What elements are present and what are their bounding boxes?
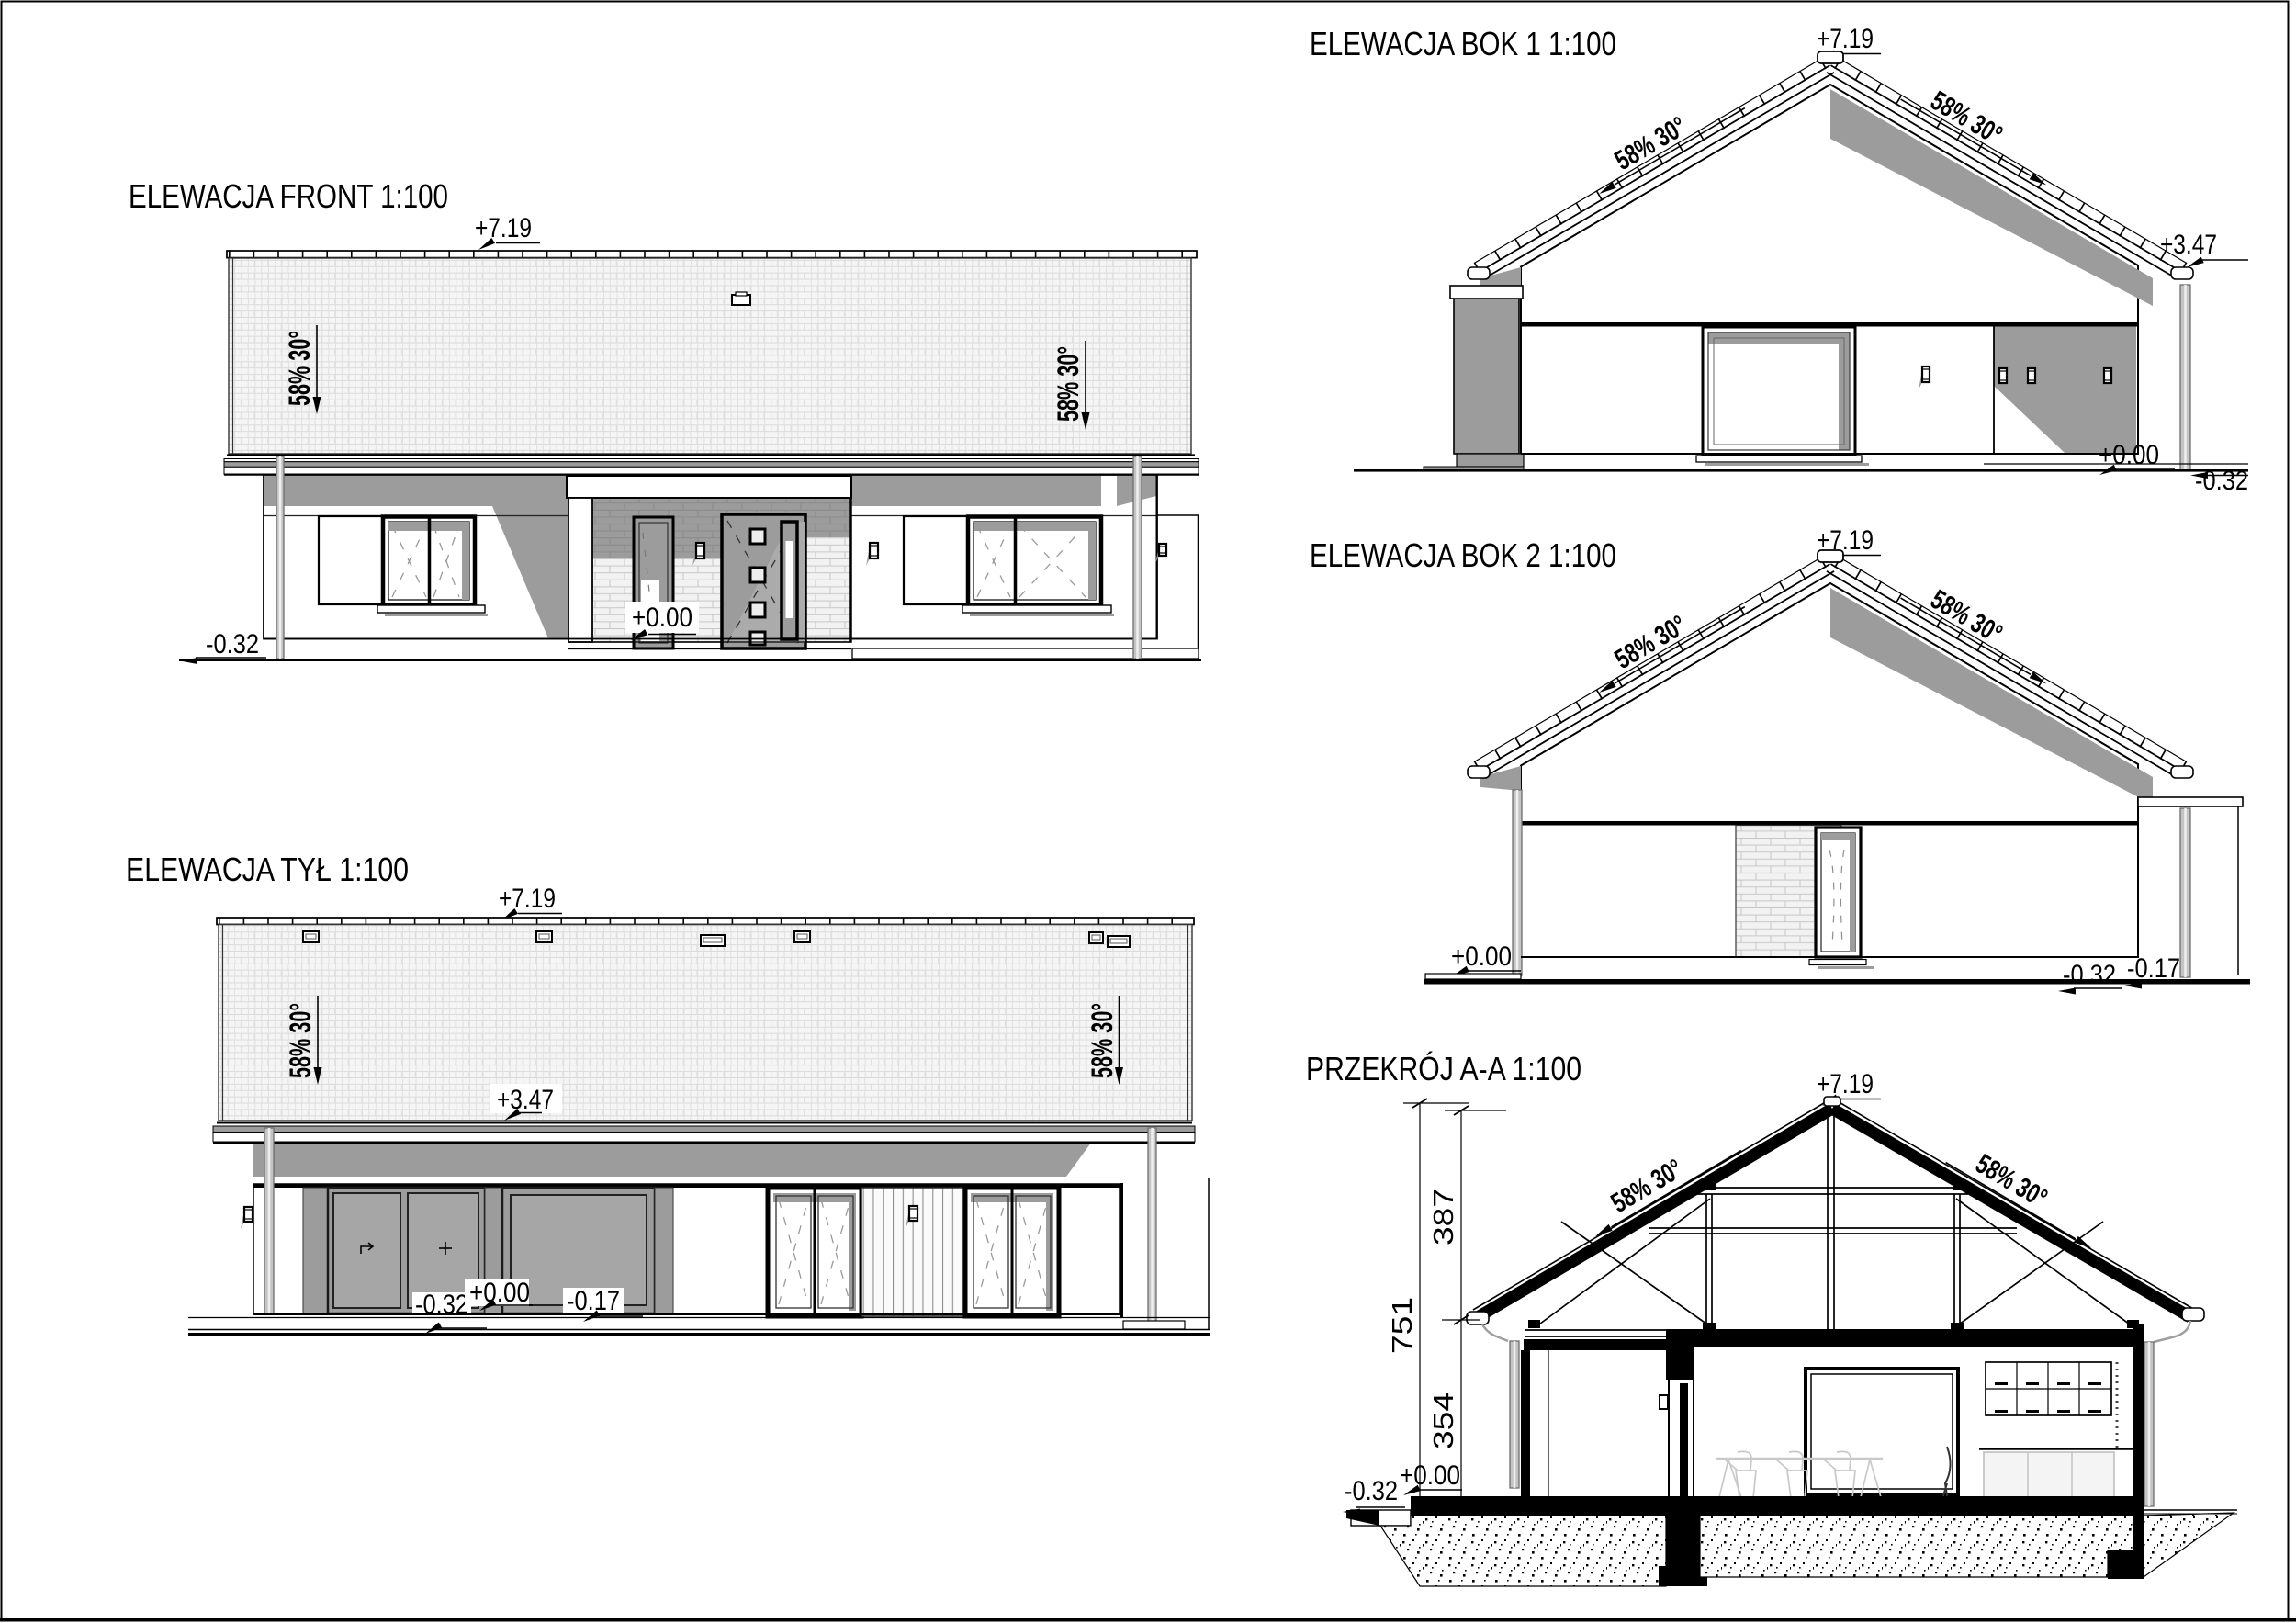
svg-text:-0.32: -0.32 xyxy=(1345,1476,1398,1506)
svg-text:-0.32: -0.32 xyxy=(2063,960,2116,990)
svg-text:+0.00: +0.00 xyxy=(1400,1460,1460,1491)
svg-text:58% 30°: 58% 30° xyxy=(284,1003,317,1078)
svg-text:+7.19: +7.19 xyxy=(1817,1069,1874,1099)
svg-text:+7.19: +7.19 xyxy=(475,213,532,243)
svg-text:-0.32: -0.32 xyxy=(415,1290,468,1320)
svg-text:+7.19: +7.19 xyxy=(1817,24,1874,54)
svg-text:751: 751 xyxy=(1386,1297,1418,1354)
svg-text:+7.19: +7.19 xyxy=(499,884,556,914)
svg-text:-0.17: -0.17 xyxy=(567,1286,620,1316)
svg-text:387: 387 xyxy=(1427,1189,1459,1245)
svg-text:PRZEKRÓJ A-A 1:100: PRZEKRÓJ A-A 1:100 xyxy=(1306,1050,1581,1088)
svg-text:ELEWACJA FRONT 1:100: ELEWACJA FRONT 1:100 xyxy=(129,177,448,215)
svg-text:+3.47: +3.47 xyxy=(497,1085,554,1115)
svg-text:354: 354 xyxy=(1427,1392,1459,1449)
svg-text:58% 30°: 58% 30° xyxy=(283,331,316,406)
svg-text:+0.00: +0.00 xyxy=(1451,941,1512,972)
svg-text:-0.32: -0.32 xyxy=(206,629,259,659)
svg-text:+0.00: +0.00 xyxy=(632,603,692,633)
svg-text:58% 30°: 58% 30° xyxy=(1086,1003,1119,1078)
svg-text:ELEWACJA TYŁ 1:100: ELEWACJA TYŁ 1:100 xyxy=(126,851,409,888)
svg-text:+0.00: +0.00 xyxy=(2099,440,2159,470)
svg-text:+3.47: +3.47 xyxy=(2160,230,2217,260)
svg-text:ELEWACJA BOK 2 1:100: ELEWACJA BOK 2 1:100 xyxy=(1310,536,1616,574)
svg-text:ELEWACJA BOK 1 1:100: ELEWACJA BOK 1 1:100 xyxy=(1310,25,1616,62)
svg-text:+0.00: +0.00 xyxy=(469,1278,530,1308)
svg-text:58% 30°: 58% 30° xyxy=(1052,346,1085,422)
